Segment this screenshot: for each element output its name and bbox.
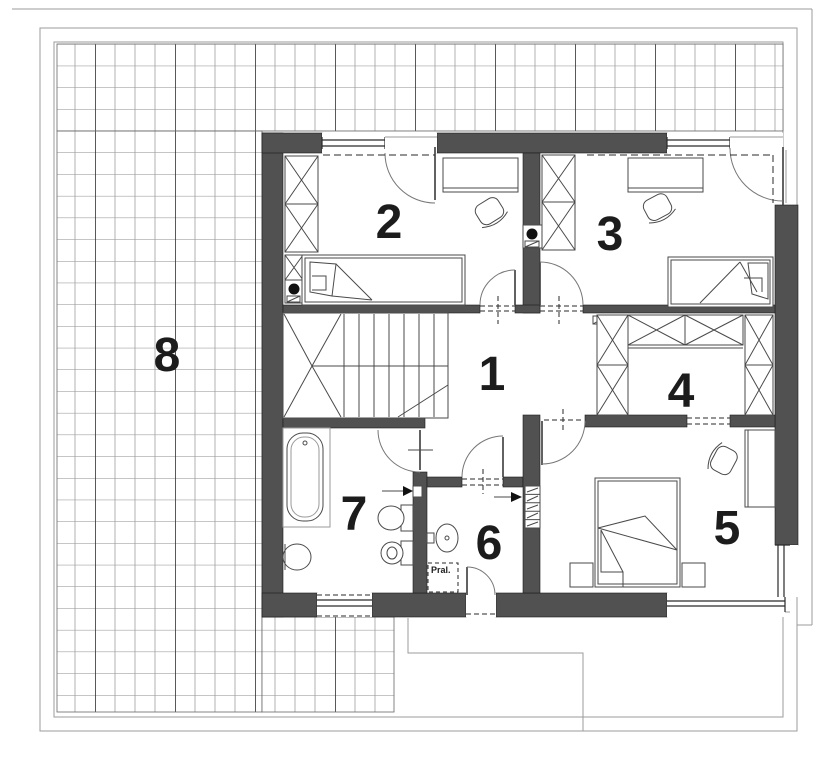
door-room6-hall [462, 436, 503, 494]
bed-symbol [302, 255, 465, 305]
door-room3-hall [540, 262, 583, 324]
chimney-room2-room3-wall [523, 225, 542, 248]
bidet-symbol [381, 541, 413, 565]
room6-furniture: Pral. [427, 524, 458, 592]
room3-furniture [542, 155, 773, 307]
nightstand-symbol [570, 563, 593, 587]
bed-symbol [668, 257, 773, 307]
bathtub-symbol [283, 428, 330, 527]
window-room5-bottom [667, 593, 785, 617]
window-room5-right [775, 545, 798, 597]
wall-exterior-top-b [437, 133, 667, 153]
washing-machine-symbol: Pral. [428, 563, 458, 592]
office-chair-icon [704, 441, 740, 479]
double-bed-symbol [595, 478, 680, 587]
nightstand-symbol [682, 563, 705, 587]
wall-room6-top-b [503, 477, 523, 487]
passage-room4-room5 [687, 418, 730, 424]
wall-exterior-bottom-a [262, 593, 317, 617]
door-room3-roof [730, 133, 786, 205]
door-room5-hall [542, 409, 585, 465]
wall-room2-hall-a [283, 305, 480, 313]
window-room2-top [322, 133, 385, 153]
office-chair-icon [471, 194, 510, 231]
wall-exterior-left [262, 133, 283, 617]
wall-exterior-top-a [262, 133, 322, 153]
desk-symbol [628, 158, 703, 192]
desk-symbol [745, 430, 775, 507]
room-label-4: 4 [668, 365, 695, 418]
wardrobe-symbol [542, 155, 575, 250]
floor-plan-svg: Pral. 1 2 3 4 5 6 7 8 [0, 0, 840, 768]
wall-room2-hall-b [515, 305, 540, 313]
vent-arrow-right-icon [403, 486, 413, 496]
room-label-7: 7 [341, 488, 368, 541]
wall-exterior-right [775, 205, 798, 545]
room-label-5: 5 [714, 502, 741, 555]
room-label-6: 6 [476, 517, 503, 570]
vent-arrow-right-icon [511, 492, 522, 502]
floor-plan-drawing: Pral. 1 2 3 4 5 6 7 8 [0, 0, 840, 768]
door-room6-exterior [466, 567, 496, 617]
toilet-symbol [378, 505, 413, 531]
vent-arrow-room6 [494, 492, 522, 502]
room-label-1: 1 [479, 348, 506, 401]
washing-machine-label: Pral. [431, 565, 451, 575]
vent-shaft-room6-room5 [525, 486, 540, 528]
room-label-3: 3 [597, 208, 624, 261]
window-room7-bottom [317, 593, 372, 617]
sink-symbol [427, 524, 458, 552]
vent-outlet-room7 [382, 486, 422, 497]
wall-stairs-bath [283, 418, 425, 428]
stairs-treads [284, 314, 448, 417]
room-label-2: 2 [376, 196, 403, 249]
room5-furniture [570, 430, 775, 587]
room-label-8: 8 [154, 329, 181, 382]
chimney-room2-corner [285, 280, 303, 303]
wall-room6-top-a [427, 477, 462, 487]
door-room2-hall [480, 270, 515, 324]
wall-room4-room5-b [730, 415, 775, 427]
roof-hatch-bottom-block [262, 617, 394, 712]
door-room2-roof [385, 133, 437, 203]
door-room7-hall [378, 430, 420, 472]
roof-hatch-left-block [57, 131, 262, 712]
washbasin-symbol [283, 544, 311, 570]
wall-exterior-bottom-c [496, 593, 667, 617]
roof-hatch-top-strip [57, 44, 783, 131]
wall-exterior-bottom-b [372, 593, 466, 617]
window-room3-top [667, 133, 730, 153]
staircase [283, 313, 448, 418]
desk-symbol [443, 158, 518, 192]
office-chair-icon [639, 190, 677, 226]
